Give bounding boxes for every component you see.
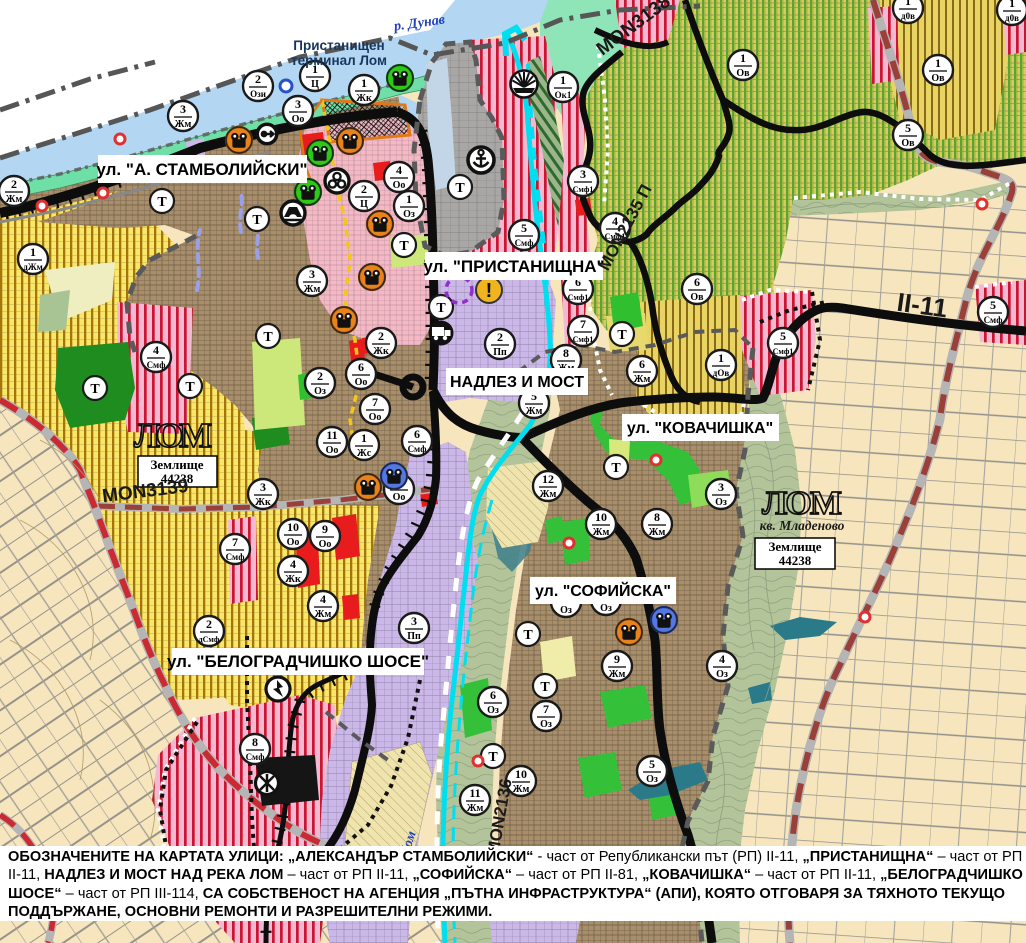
svg-text:Оо: Оо: [319, 539, 332, 550]
svg-text:Ов: Ов: [901, 138, 915, 149]
svg-text:Жк: Жк: [356, 93, 372, 104]
svg-text:2: 2: [206, 617, 212, 631]
svg-text:5: 5: [990, 298, 996, 312]
svg-text:Оо: Оо: [326, 445, 339, 456]
svg-text:3: 3: [309, 267, 315, 281]
svg-text:ул. "КОВАЧИШКА": ул. "КОВАЧИШКА": [627, 420, 773, 437]
svg-text:Оз: Оз: [716, 669, 728, 680]
svg-text:7: 7: [580, 317, 586, 331]
svg-text:Оз: Оз: [560, 605, 572, 616]
svg-text:3: 3: [260, 480, 266, 494]
svg-text:Ок1: Ок1: [555, 90, 572, 100]
svg-text:ул. "СОФИЙСКА": ул. "СОФИЙСКА": [535, 581, 671, 600]
svg-text:Жк: Жк: [285, 574, 301, 585]
svg-text:Ц: Ц: [360, 199, 368, 210]
svg-text:ЛОМ: ЛОМ: [134, 416, 212, 455]
svg-text:8: 8: [563, 346, 569, 360]
svg-text:Т: Т: [523, 628, 533, 643]
svg-text:Т: Т: [399, 239, 409, 254]
svg-text:Жм: Жм: [649, 527, 666, 538]
svg-text:Оо: Оо: [393, 180, 406, 191]
svg-text:Оз: Оз: [600, 603, 612, 614]
svg-text:ул. "БЕЛОГРАДЧИШКО ШОСЕ": ул. "БЕЛОГРАДЧИШКО ШОСЕ": [167, 652, 429, 671]
svg-text:Т: Т: [252, 213, 262, 228]
svg-text:Ов: Ов: [931, 73, 945, 84]
svg-text:1: 1: [905, 0, 911, 8]
svg-text:6: 6: [358, 360, 364, 374]
svg-text:ул. "ПРИСТАНИЩНА": ул. "ПРИСТАНИЩНА": [423, 257, 604, 276]
svg-text:Смф: Смф: [984, 315, 1003, 325]
svg-text:3: 3: [580, 167, 586, 181]
svg-text:Жм: Жм: [6, 194, 23, 205]
svg-text:1: 1: [30, 245, 36, 259]
svg-text:Ц: Ц: [311, 79, 319, 90]
svg-text:9: 9: [614, 652, 620, 666]
svg-text:2: 2: [378, 329, 384, 343]
svg-text:1: 1: [740, 51, 746, 65]
svg-text:кв. Младеново: кв. Младеново: [760, 518, 845, 533]
svg-text:3: 3: [295, 97, 301, 111]
svg-text:5: 5: [780, 329, 786, 343]
svg-text:7: 7: [372, 395, 378, 409]
svg-text:1: 1: [406, 192, 412, 206]
svg-text:Жм: Жм: [467, 803, 484, 814]
svg-text:Ов: Ов: [736, 68, 750, 79]
svg-text:1: 1: [1009, 0, 1015, 10]
svg-text:д0в: д0в: [1005, 13, 1019, 23]
svg-text:Жс: Жс: [357, 448, 372, 459]
svg-text:1: 1: [560, 73, 566, 87]
svg-text:Оо: Оо: [355, 377, 368, 388]
svg-text:дОв: дОв: [713, 368, 730, 378]
svg-text:Смф: Смф: [226, 552, 245, 562]
svg-text:Т: Т: [90, 382, 100, 397]
svg-text:2: 2: [255, 72, 261, 86]
svg-text:4: 4: [153, 343, 159, 357]
svg-text:Ози: Ози: [250, 89, 266, 99]
svg-text:2: 2: [497, 330, 503, 344]
svg-text:д0в: д0в: [901, 11, 915, 21]
svg-text:Жм: Жм: [304, 284, 321, 295]
svg-text:Оз: Оз: [314, 386, 326, 397]
svg-text:2: 2: [361, 182, 367, 196]
svg-text:2: 2: [11, 177, 17, 191]
svg-text:дЖм: дЖм: [23, 262, 43, 272]
svg-text:1: 1: [361, 431, 367, 445]
svg-text:Смф1: Смф1: [773, 347, 794, 356]
svg-text:Жм: Жм: [513, 784, 530, 795]
svg-text:Оз: Оз: [403, 209, 415, 220]
svg-text:6: 6: [694, 275, 700, 289]
svg-text:9: 9: [322, 522, 328, 536]
svg-text:4: 4: [396, 163, 402, 177]
svg-text:Ов: Ов: [690, 292, 704, 303]
svg-text:ул. "А. СТАМБОЛИЙСКИ": ул. "А. СТАМБОЛИЙСКИ": [96, 160, 307, 179]
svg-text:Оо: Оо: [369, 412, 382, 423]
svg-text:терминал Лом: терминал Лом: [291, 53, 387, 68]
svg-text:Жм: Жм: [609, 669, 626, 680]
svg-text:1: 1: [718, 351, 724, 365]
svg-text:Оз: Оз: [646, 774, 658, 785]
svg-text:7: 7: [543, 702, 549, 716]
svg-text:10: 10: [595, 510, 607, 524]
svg-text:Оо: Оо: [393, 492, 406, 503]
svg-text:Землище: Землище: [768, 539, 821, 554]
svg-text:Оз: Оз: [487, 705, 499, 716]
svg-text:3: 3: [180, 102, 186, 116]
svg-text:1: 1: [361, 76, 367, 90]
svg-text:Т: Т: [488, 750, 498, 765]
svg-text:Смф: Смф: [515, 238, 534, 248]
svg-text:Т: Т: [455, 181, 465, 196]
svg-text:4: 4: [290, 557, 296, 571]
svg-text:Т: Т: [436, 301, 446, 316]
svg-text:Жк: Жк: [255, 497, 271, 508]
svg-text:6: 6: [490, 688, 496, 702]
svg-text:Т: Т: [617, 328, 627, 343]
svg-text:11: 11: [326, 428, 337, 442]
svg-text:8: 8: [252, 735, 258, 749]
svg-text:Т: Т: [540, 680, 550, 695]
svg-text:Жк: Жк: [373, 346, 389, 357]
svg-text:1: 1: [935, 56, 941, 70]
svg-text:Пп: Пп: [407, 631, 421, 642]
svg-text:44238: 44238: [779, 553, 812, 568]
svg-text:Землище: Землище: [150, 457, 203, 472]
svg-text:дСмф: дСмф: [199, 635, 220, 644]
svg-text:6: 6: [639, 357, 645, 371]
svg-text:Смф1: Смф1: [573, 185, 594, 194]
svg-text:Смф: Смф: [246, 752, 265, 762]
svg-text:Т: Т: [185, 380, 195, 395]
svg-text:10: 10: [515, 767, 527, 781]
svg-text:Жм: Жм: [315, 609, 332, 620]
svg-text:2: 2: [317, 369, 323, 383]
svg-text:Жм: Жм: [175, 119, 192, 130]
svg-text:Смф1: Смф1: [568, 293, 589, 302]
svg-text:Жм: Жм: [540, 489, 557, 500]
svg-text:Жм: Жм: [526, 406, 543, 417]
svg-text:Жм: Жм: [634, 374, 651, 385]
svg-text:Оз: Оз: [540, 719, 552, 730]
svg-text:Т: Т: [263, 330, 273, 345]
svg-text:Т: Т: [157, 195, 167, 210]
svg-text:4: 4: [719, 652, 725, 666]
svg-text:Оз: Оз: [715, 497, 727, 508]
svg-text:Т: Т: [611, 461, 621, 476]
svg-text:5: 5: [905, 121, 911, 135]
svg-text:11: 11: [469, 786, 480, 800]
svg-text:7: 7: [232, 535, 238, 549]
svg-text:ЛОМ: ЛОМ: [762, 485, 842, 522]
svg-text:Пп: Пп: [493, 347, 507, 358]
svg-text:3: 3: [718, 480, 724, 494]
svg-text:Пристанищен: Пристанищен: [293, 38, 384, 53]
svg-text:НАДЛЕЗ И МОСТ: НАДЛЕЗ И МОСТ: [450, 374, 584, 391]
svg-text:3: 3: [411, 614, 417, 628]
svg-text:Смф: Смф: [147, 360, 166, 370]
svg-text:10: 10: [287, 520, 299, 534]
svg-text:4: 4: [320, 592, 326, 606]
svg-text:Смф: Смф: [408, 444, 427, 454]
svg-text:Смф1: Смф1: [573, 335, 594, 344]
svg-text:5: 5: [649, 757, 655, 771]
svg-text:Оо: Оо: [292, 114, 305, 125]
svg-text:!: !: [486, 280, 493, 302]
svg-text:6: 6: [414, 427, 420, 441]
svg-text:5: 5: [521, 221, 527, 235]
svg-text:12: 12: [542, 472, 554, 486]
svg-text:Оо: Оо: [287, 537, 300, 548]
svg-text:8: 8: [654, 510, 660, 524]
svg-text:Жм: Жм: [593, 527, 610, 538]
